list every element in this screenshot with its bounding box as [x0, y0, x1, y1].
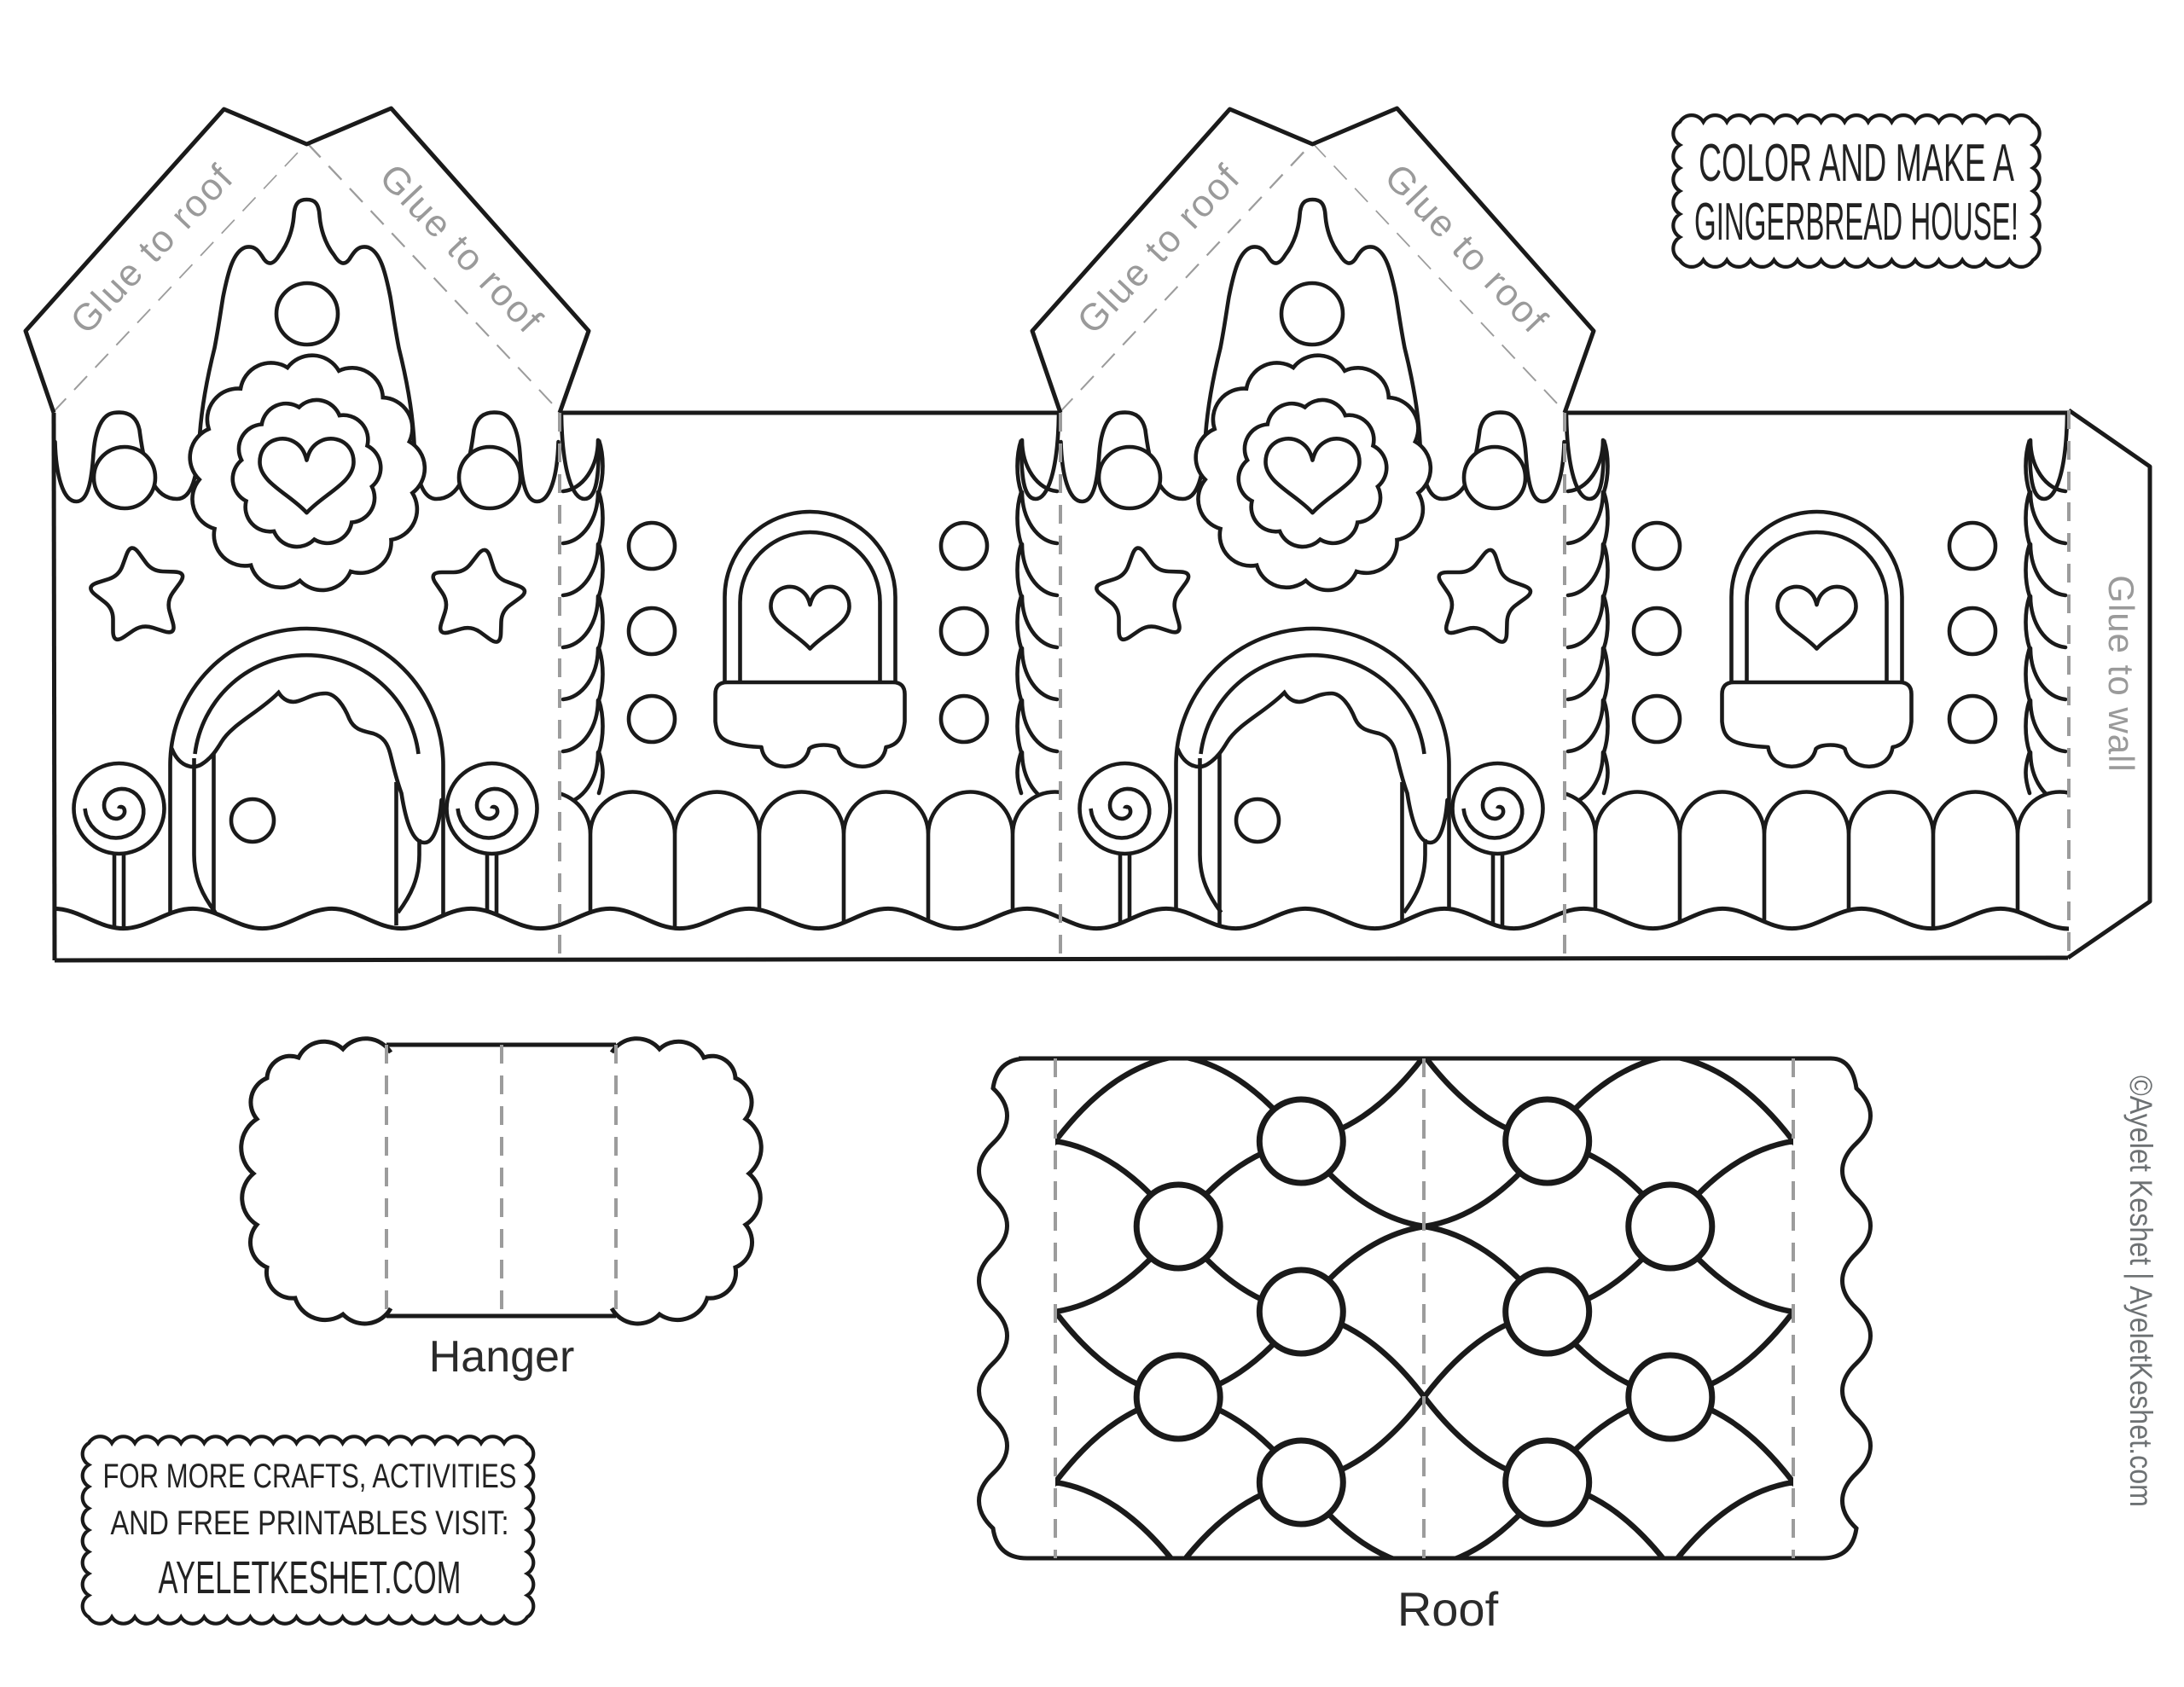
svg-text:Glue to wall: Glue to wall	[2101, 575, 2141, 772]
svg-text:FOR MORE CRAFTS, ACTIVITIES: FOR MORE CRAFTS, ACTIVITIES	[103, 1458, 517, 1495]
svg-text:COLOR AND MAKE A: COLOR AND MAKE A	[1699, 134, 2014, 193]
svg-text:AYELETKESHET.COM: AYELETKESHET.COM	[159, 1552, 462, 1603]
svg-text:Roof: Roof	[1397, 1582, 1499, 1636]
svg-text:Hanger: Hanger	[429, 1332, 575, 1382]
svg-text:AND FREE PRINTABLES VISIT:: AND FREE PRINTABLES VISIT:	[111, 1504, 509, 1542]
svg-text:GINGERBREAD HOUSE!: GINGERBREAD HOUSE!	[1694, 193, 2018, 252]
svg-text:©Ayelet Keshet | AyeletKeshet.: ©Ayelet Keshet | AyeletKeshet.com	[2123, 1075, 2158, 1507]
